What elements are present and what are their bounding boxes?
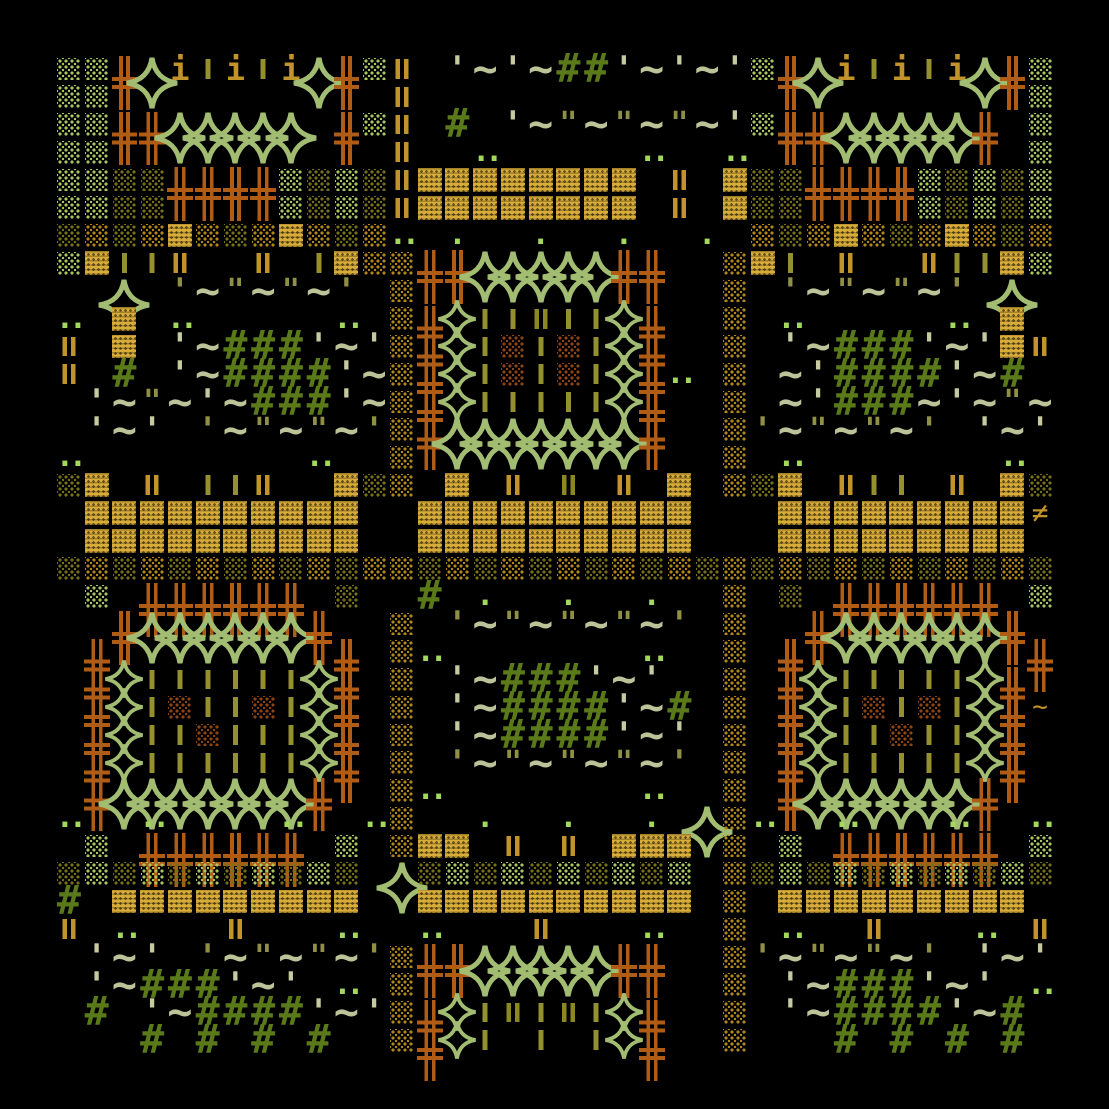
single-bar-olive [555,305,583,333]
sparkle-large-icon [943,111,971,167]
weave-block-gold [777,471,805,499]
dotted-block-olive [1026,555,1054,583]
hash-olive: # [277,999,305,1027]
cross-orange [166,166,194,222]
single-bar-olive [527,360,555,388]
cross-orange [888,166,916,222]
dotted-block-gold [721,804,749,832]
dotted-block-rust [499,360,527,388]
weave-block-gold [166,222,194,250]
dotted-block-lightgreen [1026,582,1054,610]
dotted-block-gold [721,305,749,333]
dotted-block-lightgreen [138,860,166,888]
dotted-block-lightgreen [83,582,111,610]
weave-block-gold [943,888,971,916]
dotted-block-rust [249,693,277,721]
weave-block-gold [999,249,1027,277]
dot-pair: .. [416,777,444,805]
dotted-block-lightgreen [55,249,83,277]
dotted-block-olive [166,555,194,583]
dotted-block-olive [888,222,916,250]
dotted-block-lightgreen [943,860,971,888]
dotted-block-lightgreen [249,860,277,888]
weave-block-gold [194,888,222,916]
weave-block-gold [832,527,860,555]
single-bar-olive [222,749,250,777]
dotted-block-lightgreen [83,83,111,111]
cross-orange [832,166,860,222]
dotted-block-olive [749,166,777,194]
tilde-sage: ~ [638,55,666,83]
dotted-block-lightgreen [360,111,388,139]
dotted-block-olive [527,860,555,888]
weave-block-gold [83,527,111,555]
single-bar-olive [194,693,222,721]
quote-sage: ' [943,388,971,416]
dotted-block-olive [166,860,194,888]
weave-block-gold [194,499,222,527]
dotted-block-gold [666,555,694,583]
single-bar-olive [915,55,943,83]
dot-pair: .. [777,444,805,472]
dotted-block-gold [721,971,749,999]
sparkle-large-icon [277,610,305,666]
weave-block-gold [527,527,555,555]
dotted-block-lightgreen [971,166,999,194]
dotted-block-olive [111,194,139,222]
dotted-block-lightgreen [1026,832,1054,860]
weave-block-gold [194,527,222,555]
weave-block-gold [333,499,361,527]
sparkle-icon [111,749,139,777]
tilde-sage: ~ [832,416,860,444]
weave-block-gold [499,888,527,916]
dotted-block-lightgreen [55,194,83,222]
weave-block-gold [222,527,250,555]
quote-sage: ' [1026,416,1054,444]
sparkle-icon [804,749,832,777]
dotted-block-lightgreen [915,194,943,222]
weave-block-gold [860,499,888,527]
dotted-block-gold [721,777,749,805]
quote-olive: ' [194,416,222,444]
sparkle-icon [444,1026,472,1054]
ditto-olive: " [610,610,638,638]
dotted-block-olive [305,166,333,194]
dotted-block-lightgreen [55,83,83,111]
tilde-sage: ~ [804,277,832,305]
dotted-block-olive [804,555,832,583]
weave-block-gold [721,194,749,222]
dotted-block-gold [499,555,527,583]
cross-orange [333,111,361,167]
sparkle-icon [610,1026,638,1054]
dotted-block-gold [1026,222,1054,250]
tilde-sage: ~ [471,55,499,83]
tilde-sage: ~ [222,416,250,444]
hash-olive: # [888,1026,916,1054]
cross-orange [333,749,361,805]
dotted-block-olive [1026,471,1054,499]
cross-orange [111,111,139,167]
dotted-block-gold [721,721,749,749]
tilde-sage: ~ [471,749,499,777]
dotted-block-olive [749,860,777,888]
dotted-block-gold [388,416,416,444]
weave-block-gold [999,888,1027,916]
i-bar-gold: i [166,55,194,83]
dotted-block-lightgreen [55,166,83,194]
hash-olive: # [194,1026,222,1054]
dotted-block-gold [721,333,749,361]
tilde-sage: ~ [999,943,1027,971]
weave-block-gold [222,888,250,916]
dotted-block-gold [721,860,749,888]
tilde-sage: ~ [915,277,943,305]
sparkle-icon [305,749,333,777]
dotted-block-gold [388,388,416,416]
quote-olive: ' [444,749,472,777]
weave-block-gold [471,499,499,527]
weave-block-gold [138,888,166,916]
dotted-block-olive [111,166,139,194]
sparkle-large-icon [804,55,832,111]
dot: . [444,222,472,250]
dot: . [471,804,499,832]
quote-sage: ' [777,999,805,1027]
weave-block-gold [610,832,638,860]
cross-orange [610,249,638,305]
tilde-sage: ~ [527,111,555,139]
weave-block-gold [83,471,111,499]
dotted-block-gold [388,943,416,971]
dotted-block-lightgreen [55,111,83,139]
double-bar-gold [499,832,527,860]
dotted-block-olive [971,860,999,888]
dotted-block-gold [388,305,416,333]
weave-block-gold [915,888,943,916]
quote-sage: ' [444,55,472,83]
sparkle-icon [444,388,472,416]
dotted-block-lightgreen [1026,166,1054,194]
dotted-block-gold [388,693,416,721]
dotted-block-lightgreen [915,166,943,194]
weave-block-gold [915,527,943,555]
dotted-block-olive [582,860,610,888]
i-bar-gold: i [222,55,250,83]
weave-block-gold [582,527,610,555]
hash-olive: # [832,1026,860,1054]
ditto-olive: " [499,749,527,777]
double-bar-gold [388,138,416,166]
weave-block-gold [111,305,139,333]
dotted-block-olive [860,555,888,583]
cross-orange [999,749,1027,805]
dotted-block-gold [305,555,333,583]
dotted-block-gold [360,555,388,583]
quote-sage: ' [610,55,638,83]
weave-block-gold [888,888,916,916]
dotted-block-lightgreen [333,194,361,222]
weave-block-gold [444,471,472,499]
single-bar-olive [194,666,222,694]
hash-olive: # [83,999,111,1027]
dotted-block-gold [721,249,749,277]
dotted-block-gold [388,638,416,666]
dotted-block-lightgreen [1026,194,1054,222]
dotted-block-lightgreen [83,832,111,860]
weave-block-gold [249,888,277,916]
weave-block-gold [277,499,305,527]
single-bar-olive [499,305,527,333]
dot-pair: .. [55,444,83,472]
dotted-block-rust [499,333,527,361]
hash-olive: # [138,1026,166,1054]
sparkle-large-icon [388,860,416,916]
weave-block-gold [471,166,499,194]
dotted-block-gold [721,471,749,499]
weave-block-gold [804,499,832,527]
weave-block-gold [471,527,499,555]
single-bar-olive [499,388,527,416]
dotted-block-olive [749,471,777,499]
dotted-block-olive [943,166,971,194]
tilde-sage: ~ [111,971,139,999]
cross-orange [610,943,638,999]
single-bar-olive [888,749,916,777]
single-bar-olive [166,666,194,694]
dot-pair: .. [721,138,749,166]
dotted-block-lightgreen [1026,111,1054,139]
double-bar-gold [555,832,583,860]
single-bar-olive [888,666,916,694]
quote-sage: ' [499,55,527,83]
dotted-block-lightgreen [832,860,860,888]
dotted-block-olive [333,582,361,610]
weave-block-gold [582,194,610,222]
single-bar-olive [860,55,888,83]
dotted-block-gold [388,804,416,832]
weave-block-gold [444,832,472,860]
dot-pair: .. [749,804,777,832]
single-bar-olive [249,55,277,83]
weave-block-gold [943,222,971,250]
single-bar-olive [194,55,222,83]
weave-block-gold [471,194,499,222]
single-bar-olive [860,749,888,777]
dot-pair: .. [1026,971,1054,999]
weave-block-gold [416,499,444,527]
double-bar-gold [55,333,83,361]
dotted-block-gold [360,249,388,277]
dotted-block-lightgreen [333,832,361,860]
weave-block-gold [777,527,805,555]
dotted-block-olive [360,471,388,499]
weave-block-gold [277,888,305,916]
weave-block-gold [971,499,999,527]
weave-block-gold [610,166,638,194]
dotted-block-gold [388,749,416,777]
cross-orange [638,1026,666,1082]
tilde-sage: ~ [194,277,222,305]
dot-pair: .. [638,138,666,166]
single-bar-olive [527,1026,555,1054]
weave-block-gold [555,166,583,194]
single-bar-olive [832,749,860,777]
tilde-sage: ~ [693,55,721,83]
hash-olive: # [444,111,472,139]
weave-block-gold [277,527,305,555]
weave-block-gold [416,166,444,194]
single-bar-olive [222,471,250,499]
ditto-olive: " [888,277,916,305]
weave-block-gold [943,527,971,555]
weave-block-gold [555,499,583,527]
hash-olive: # [249,1026,277,1054]
dotted-block-gold [721,832,749,860]
dotted-block-gold [721,277,749,305]
single-bar-olive [111,249,139,277]
weave-block-gold [416,527,444,555]
weave-block-gold [666,499,694,527]
weave-block-gold [666,471,694,499]
dotted-block-rust [915,693,943,721]
sparkle-large-icon [305,55,333,111]
tilde-sage: ~ [527,55,555,83]
dotted-block-gold [360,222,388,250]
weave-block-gold [83,249,111,277]
weave-block-gold [888,499,916,527]
ditto-olive: " [610,111,638,139]
single-bar-olive [166,749,194,777]
dotted-block-gold [749,222,777,250]
single-bar-olive [249,666,277,694]
dotted-block-rust [555,333,583,361]
quote-olive: ' [360,943,388,971]
single-bar-olive [527,333,555,361]
dotted-block-olive [693,555,721,583]
dotted-block-gold [721,638,749,666]
dotted-block-gold [388,777,416,805]
cross-orange [999,55,1027,111]
cross-orange [971,777,999,833]
dotted-block-lightgreen [1026,138,1054,166]
tilde-sage: ~ [277,416,305,444]
dotted-block-olive [222,555,250,583]
hash-olive: # [416,582,444,610]
dotted-block-gold [721,444,749,472]
single-bar-olive [471,388,499,416]
dotted-block-gold [388,721,416,749]
dotted-block-gold [888,555,916,583]
hash-olive: # [55,888,83,916]
ditto-olive: " [666,111,694,139]
dotted-block-gold [388,666,416,694]
dotted-block-gold [721,582,749,610]
dotted-block-gold [721,360,749,388]
dotted-block-gold [83,555,111,583]
sparkle-icon [610,388,638,416]
single-bar-olive [222,693,250,721]
weave-block-gold [249,499,277,527]
weave-block-gold [832,888,860,916]
single-bar-olive [138,749,166,777]
dotted-block-gold [305,222,333,250]
dotted-block-olive [749,194,777,222]
dotted-block-olive [1026,860,1054,888]
weave-block-gold [444,499,472,527]
tilde-sage: ~ [111,416,139,444]
weave-block-gold [416,194,444,222]
single-bar-olive [915,721,943,749]
dotted-block-gold [388,832,416,860]
dotted-block-lightgreen [1026,55,1054,83]
dotted-block-olive [749,555,777,583]
dot-pair: .. [416,638,444,666]
weave-block-gold [166,888,194,916]
quote-sage: ' [499,111,527,139]
weave-block-gold [999,471,1027,499]
weave-block-gold [305,499,333,527]
dotted-block-gold [388,971,416,999]
weave-block-gold [416,832,444,860]
weave-block-gold [582,499,610,527]
dotted-block-olive [777,222,805,250]
ditto-olive: " [555,749,583,777]
dot: . [527,222,555,250]
quote-olive: ' [666,749,694,777]
hash-olive: # [555,55,583,83]
dotted-block-olive [111,555,139,583]
single-bar-olive [860,666,888,694]
tilde-sage: ~ [804,999,832,1027]
dotted-block-lightgreen [277,194,305,222]
weave-block-gold [721,166,749,194]
dotted-block-gold [721,999,749,1027]
dotted-block-lightgreen [55,138,83,166]
dotted-block-gold [999,555,1027,583]
weave-block-gold [527,888,555,916]
dotted-block-lightgreen [499,860,527,888]
double-bar-gold [832,471,860,499]
ascii-art-grid: iii'~'~##'~'~'iii#'~"~"~"~'............'… [55,55,1054,1054]
weave-block-gold [527,499,555,527]
dotted-block-lightgreen [749,55,777,83]
double-bar-gold [610,471,638,499]
single-bar-olive [138,249,166,277]
tilde-sage: ~ [888,416,916,444]
dotted-block-gold [388,277,416,305]
single-bar-olive [888,471,916,499]
dotted-block-gold [388,1026,416,1054]
sparkle-icon [971,749,999,777]
dotted-block-lightgreen [971,194,999,222]
weave-block-gold [915,499,943,527]
dotted-block-lightgreen [83,55,111,83]
hash-olive: # [860,999,888,1027]
single-bar-olive [555,388,583,416]
dotted-block-gold [249,222,277,250]
dotted-block-lightgreen [1026,83,1054,111]
dotted-block-gold [777,555,805,583]
weave-block-gold [111,527,139,555]
single-bar-olive [194,471,222,499]
dotted-block-gold [388,249,416,277]
dotted-block-gold [860,222,888,250]
weave-block-gold [666,832,694,860]
dotted-block-lightgreen [360,55,388,83]
cross-orange [971,111,999,167]
